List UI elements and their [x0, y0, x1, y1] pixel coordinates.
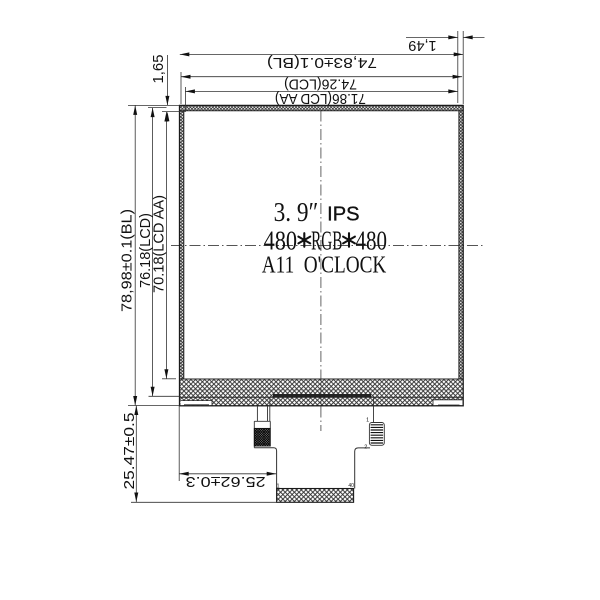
svg-text:74.26(LCD): 74.26(LCD): [284, 76, 357, 92]
svg-text:70.18(LCD AA): 70.18(LCD AA): [151, 195, 167, 293]
svg-text:1,49: 1,49: [408, 37, 436, 53]
svg-text:1: 1: [366, 417, 369, 423]
svg-text:A11 O'CLOCK: A11 O'CLOCK: [262, 252, 387, 278]
svg-text:IPS: IPS: [327, 204, 359, 226]
svg-text:71.86(LCD AA): 71.86(LCD AA): [275, 90, 366, 106]
svg-text:25.62±0.3: 25.62±0.3: [186, 473, 266, 489]
svg-text:3. 9″: 3. 9″: [274, 197, 319, 227]
svg-text:74,83±0.1(BL): 74,83±0.1(BL): [267, 54, 377, 70]
svg-text:RGB: RGB: [311, 225, 342, 255]
svg-text:25.47±0.5: 25.47±0.5: [122, 413, 138, 490]
svg-text:1,65: 1,65: [151, 55, 167, 84]
svg-text:480: 480: [356, 225, 388, 255]
svg-text:40: 40: [348, 483, 354, 489]
svg-text:1: 1: [276, 483, 279, 489]
svg-text:2: 2: [364, 445, 367, 451]
svg-text:78,98±0.1(BL): 78,98±0.1(BL): [120, 209, 136, 312]
svg-text:480: 480: [264, 225, 298, 255]
